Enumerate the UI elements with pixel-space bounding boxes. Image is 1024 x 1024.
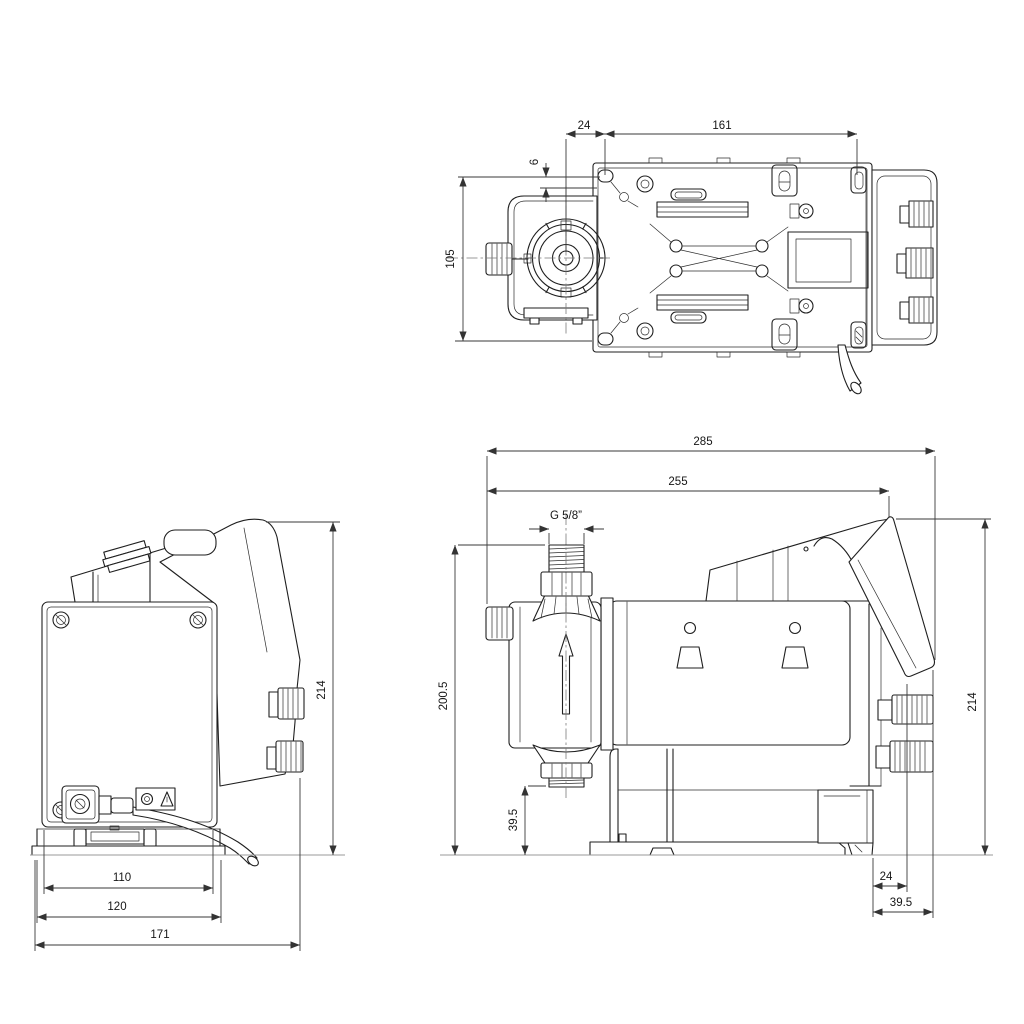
- side-view-parts: [486, 514, 935, 855]
- top-view: 24 161 6 105: [445, 120, 937, 396]
- rail-clip: [86, 829, 144, 844]
- dim-top-hole-row-span: 105: [445, 249, 457, 268]
- valve-knob: [909, 201, 933, 227]
- valve-knob: [909, 297, 933, 323]
- pump-dimensional-drawing: 24 161 6 105: [0, 0, 1024, 1024]
- valve-knob: [278, 688, 304, 719]
- top-view-parts: [447, 158, 937, 396]
- dim-side-port-clearance: 39.5: [508, 809, 520, 831]
- base-plate: [32, 846, 225, 855]
- dim-back-inner-width: 110: [113, 872, 131, 884]
- valve-knob: [906, 248, 933, 278]
- back-view: 214 110 120 171: [30, 519, 345, 951]
- dim-side-thread: G 5/8”: [550, 510, 582, 522]
- dim-side-body-length: 255: [668, 476, 687, 488]
- dim-side-port-height: 200.5: [438, 682, 450, 711]
- dim-top-head-to-hole: 24: [578, 120, 591, 132]
- union-nut: [541, 763, 592, 778]
- valve-cap: [486, 243, 512, 275]
- union-nut: [541, 572, 592, 596]
- side-view: 285 255 G 5/8” 200.5 39.5 214 24 39.5: [438, 436, 993, 918]
- dim-side-overall-length: 285: [693, 436, 712, 448]
- mounting-plate: [593, 163, 872, 352]
- valve-cap: [486, 607, 513, 640]
- dim-side-height: 214: [967, 692, 979, 712]
- dim-back-overall-width: 171: [150, 929, 169, 941]
- valve-knob: [276, 741, 303, 772]
- foot-bracket: [818, 790, 873, 843]
- valve-knob: [890, 741, 933, 772]
- handle-cutout: [164, 530, 216, 555]
- back-view-parts: [32, 519, 304, 868]
- dim-back-height: 214: [316, 680, 328, 700]
- dosing-head-side: [509, 602, 601, 748]
- dim-side-foot-offset: 24: [880, 871, 893, 883]
- dim-top-hole-span: 161: [712, 120, 731, 132]
- threaded-port: [549, 778, 584, 787]
- dim-back-base-width: 120: [107, 901, 126, 913]
- dim-side-foot-depth: 39.5: [890, 897, 912, 909]
- base-plate: [590, 842, 845, 855]
- dim-top-edge-offset: 6: [529, 159, 541, 165]
- pump-body: [609, 601, 850, 745]
